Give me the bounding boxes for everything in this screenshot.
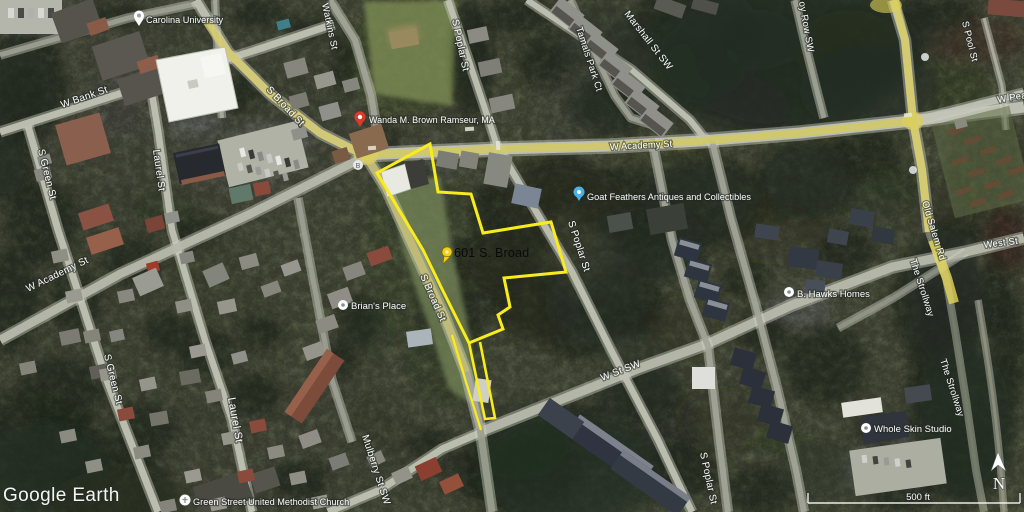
- svg-text:Goat Feathers Antiques and Col: Goat Feathers Antiques and Collectibles: [587, 192, 751, 202]
- svg-text:Carolina University: Carolina University: [146, 15, 224, 25]
- svg-text:500 ft: 500 ft: [906, 492, 930, 503]
- svg-text:B. Hawks Homes: B. Hawks Homes: [797, 289, 870, 300]
- svg-text:N: N: [993, 474, 1005, 493]
- svg-text:Whole Skin Studio: Whole Skin Studio: [874, 424, 952, 435]
- svg-text:601 S. Broad: 601 S. Broad: [454, 246, 529, 260]
- svg-text:Green Street United Methodist: Green Street United Methodist Church: [193, 497, 349, 507]
- svg-text:B: B: [356, 163, 361, 170]
- svg-text:Google Earth: Google Earth: [3, 485, 120, 506]
- svg-text:Brian's Place: Brian's Place: [351, 301, 406, 312]
- svg-text:Wanda M. Brown Ramseur, MA: Wanda M. Brown Ramseur, MA: [369, 115, 495, 125]
